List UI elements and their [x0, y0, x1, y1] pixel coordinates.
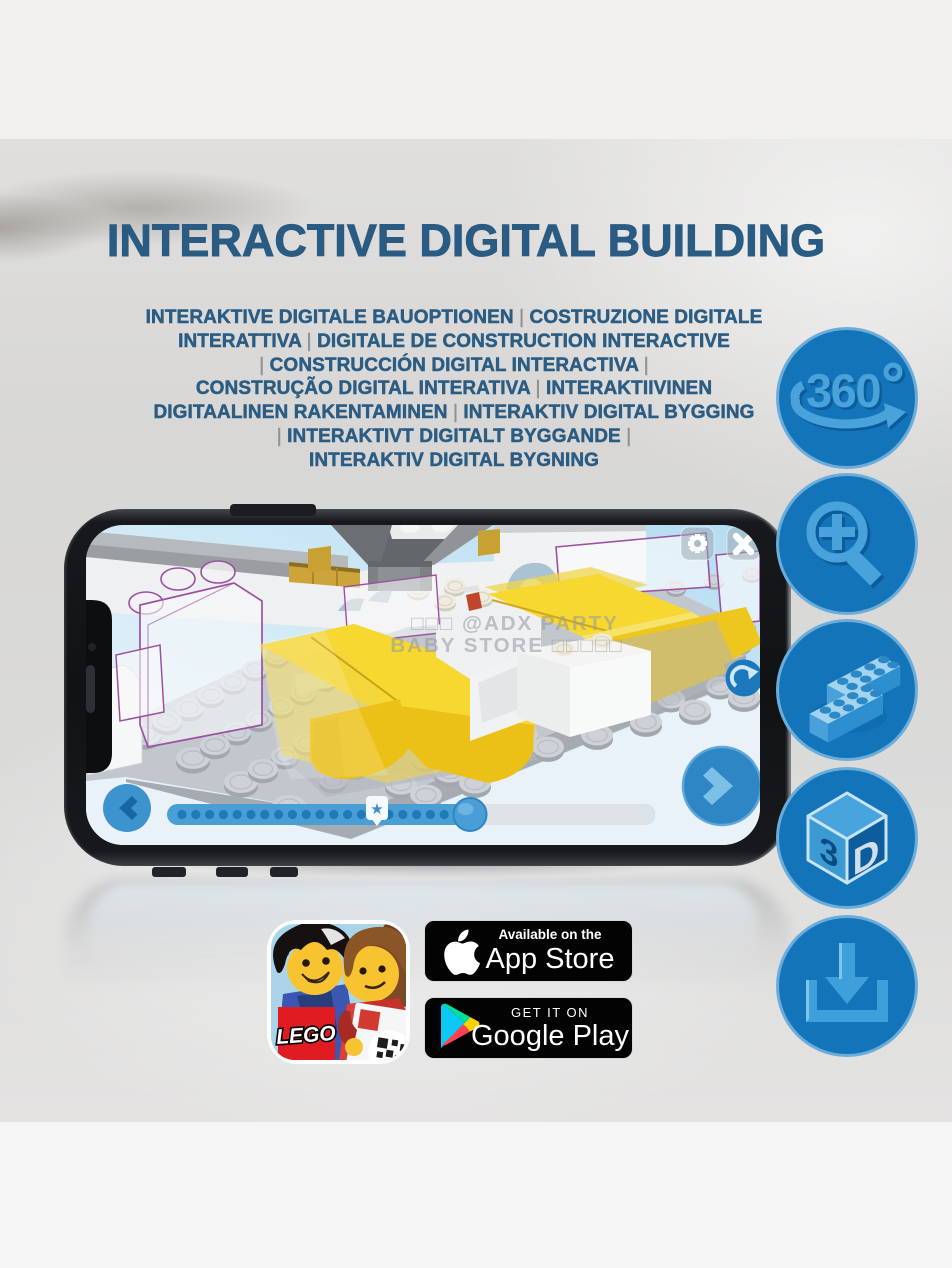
- svg-text:GET IT ON: GET IT ON: [511, 1005, 589, 1020]
- svg-text:360: 360: [806, 364, 880, 417]
- svg-text:BABY STORE □□□□□: BABY STORE □□□□□: [390, 634, 623, 657]
- svg-text:★: ★: [370, 801, 383, 818]
- svg-text:Google Play: Google Play: [471, 1020, 629, 1052]
- svg-text:Available on the: Available on the: [498, 927, 602, 942]
- svg-text:LEGO: LEGO: [275, 1022, 336, 1049]
- svg-text:□□□ @ADX PARTY: □□□ @ADX PARTY: [411, 612, 619, 635]
- svg-text:App Store: App Store: [486, 943, 615, 975]
